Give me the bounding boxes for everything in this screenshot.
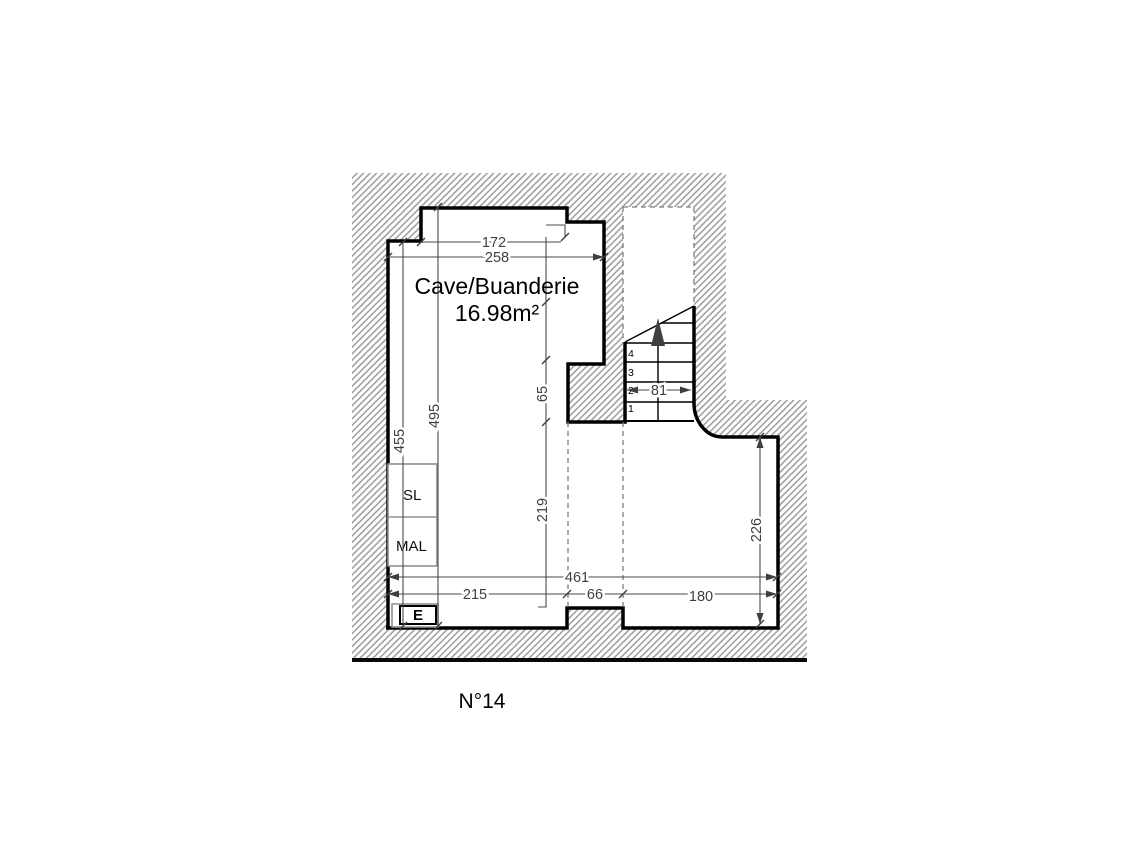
electrical-panel: E xyxy=(392,604,438,627)
dim-top-inner-width: 172 xyxy=(482,235,506,251)
dim-bottom-right-width: 180 xyxy=(689,589,713,605)
dim-mid-step-height: 65 xyxy=(535,386,551,402)
dim-bottom-opening-width: 66 xyxy=(587,587,603,603)
dim-left-inner-height: 455 xyxy=(392,429,408,453)
stair-step-1-label: 1 xyxy=(628,403,634,415)
plan-number-label: N°14 xyxy=(459,690,506,713)
dim-stair-width: 81 xyxy=(651,383,667,399)
dim-mid-lower-height: 219 xyxy=(535,498,551,522)
dim-bottom-left-width: 215 xyxy=(463,587,487,603)
stair-step-3-label: 3 xyxy=(628,367,634,379)
stair-step-4-label: 4 xyxy=(628,348,634,360)
dim-left-total-height: 495 xyxy=(427,404,443,428)
floor-plan-drawing: 4 3 2 1 SL MAL E xyxy=(0,0,1128,844)
floor-plan-page: 4 3 2 1 SL MAL E xyxy=(0,0,1128,844)
dim-top-total-width: 258 xyxy=(485,250,509,266)
washer-label: MAL xyxy=(396,538,427,555)
dim-bottom-total-width: 461 xyxy=(565,570,589,586)
wall-outer-bottom-edge xyxy=(352,658,807,662)
appliance-block: SL MAL xyxy=(388,464,437,566)
room-name-label: Cave/Buanderie xyxy=(415,273,580,299)
dryer-label: SL xyxy=(403,487,421,504)
room-area-label: 16.98m² xyxy=(455,300,540,326)
dim-right-height: 226 xyxy=(749,518,765,542)
electrical-panel-label: E xyxy=(413,607,423,624)
